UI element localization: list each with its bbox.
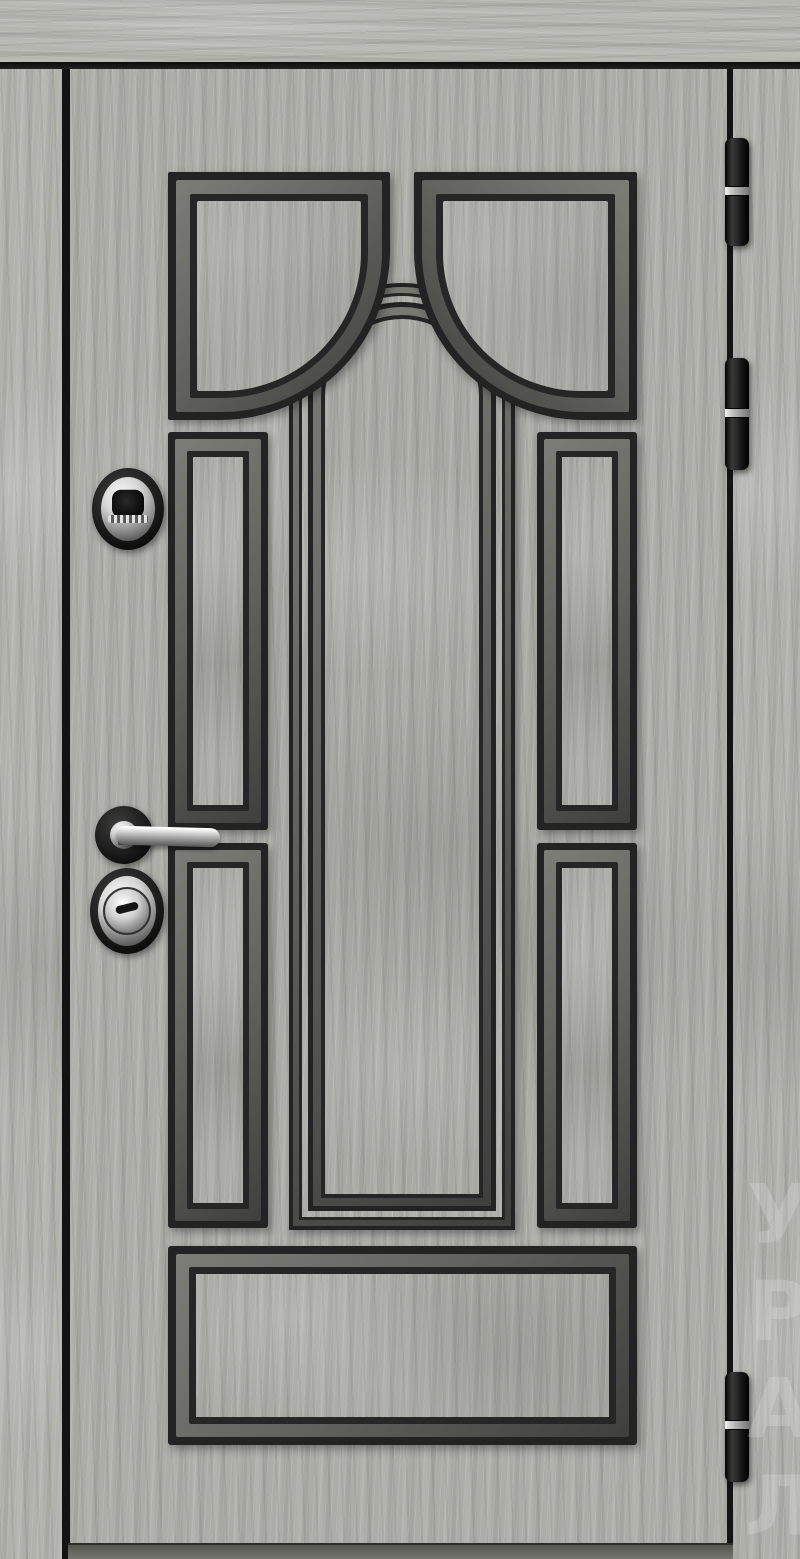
panel-upper-left-dark-ring	[187, 451, 249, 811]
hinge-bottom	[725, 1372, 749, 1482]
arch-texture-gap	[302, 296, 502, 1217]
panel-top-right-window	[443, 201, 608, 391]
panel-bottom	[168, 1246, 637, 1445]
peephole-escutcheon	[92, 468, 164, 550]
cylinder-chrome-ring	[98, 876, 156, 946]
handle-lever	[116, 826, 220, 848]
panel-lower-right	[537, 843, 637, 1228]
panel-lower-left-dark-ring	[187, 862, 249, 1209]
panel-upper-left-window	[193, 457, 243, 805]
threshold	[68, 1543, 733, 1559]
panel-lower-left-bevel	[175, 850, 261, 1221]
frame-top-gap	[0, 62, 800, 69]
panel-lower-left-window	[193, 868, 243, 1203]
frame-right-gap	[727, 69, 733, 1543]
panel-top-right-dark-ring	[436, 194, 615, 398]
peephole-chrome-ring	[101, 477, 155, 541]
key-cylinder-face	[103, 887, 151, 935]
panel-bottom-dark-ring	[189, 1267, 616, 1424]
arch-window	[325, 319, 479, 1194]
hinge-middle-chrome-ring	[725, 408, 749, 418]
cylinder-escutcheon	[90, 868, 164, 954]
panel-lower-right-window	[562, 868, 612, 1203]
frame-left-gap	[62, 69, 70, 1559]
panel-top-left-dark-ring	[190, 194, 368, 398]
panel-bottom-window	[196, 1274, 609, 1417]
hinge-top	[725, 138, 749, 246]
panel-upper-left-bevel	[175, 439, 261, 823]
arch-window-dark-ring	[321, 315, 483, 1198]
arch-outer-bevel	[293, 287, 511, 1226]
frame-right-casing	[733, 69, 800, 1559]
arch-inner-bevel	[313, 307, 491, 1206]
arch-outer-dark-ring	[299, 293, 505, 1220]
hinge-top-chrome-ring	[725, 186, 749, 196]
panel-lower-right-bevel	[544, 850, 630, 1221]
panel-upper-right-window	[562, 457, 612, 805]
hinge-middle	[725, 358, 749, 470]
arch-molding	[289, 283, 515, 1230]
panel-upper-right-dark-ring	[556, 451, 618, 811]
panel-upper-left	[168, 432, 268, 830]
frame-left-casing	[0, 69, 62, 1559]
arch-inner-dark-ring	[308, 302, 496, 1211]
panel-upper-right	[537, 432, 637, 830]
frame-top-casing	[0, 0, 800, 62]
panel-top-left-window	[197, 201, 361, 391]
panel-upper-right-bevel	[544, 439, 630, 823]
panel-lower-left	[168, 843, 268, 1228]
panel-bottom-bevel	[176, 1254, 629, 1437]
panel-lower-right-dark-ring	[556, 862, 618, 1209]
peephole-lens	[112, 490, 144, 518]
peephole-knurled-band	[108, 515, 148, 523]
hinge-bottom-chrome-ring	[725, 1420, 749, 1430]
door-photo: УРАЛ	[0, 0, 800, 1559]
keyhole-slot	[115, 902, 139, 915]
